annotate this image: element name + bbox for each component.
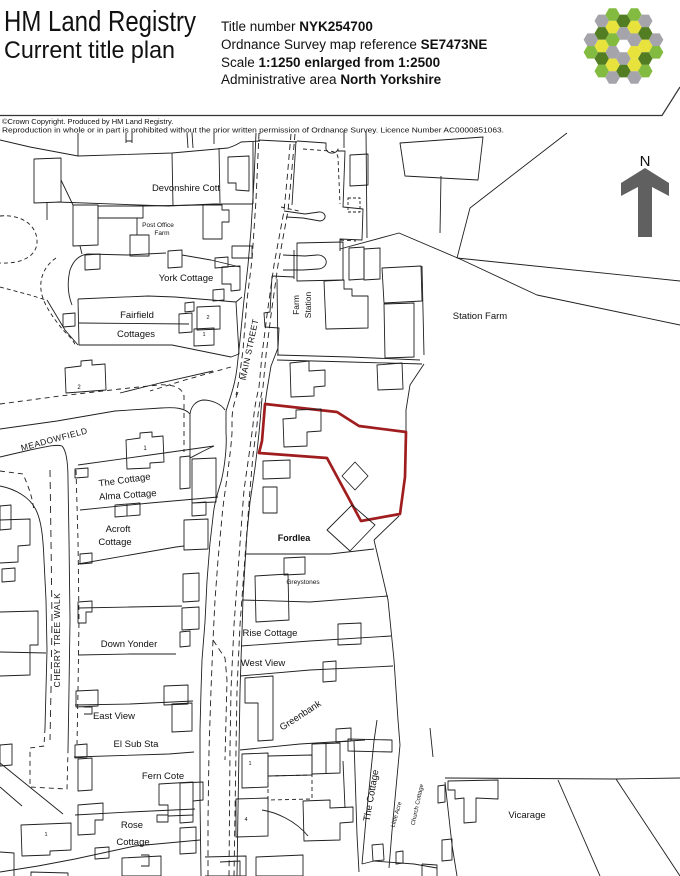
svg-text:York Cottage: York Cottage	[159, 273, 214, 284]
svg-text:Post Office: Post Office	[142, 222, 174, 229]
svg-text:Current title plan: Current title plan	[4, 37, 175, 64]
svg-text:Fordlea: Fordlea	[278, 533, 312, 543]
svg-text:Cottage: Cottage	[98, 537, 131, 548]
svg-text:Cottage: Cottage	[116, 837, 149, 848]
svg-text:1: 1	[202, 332, 205, 338]
svg-text:4: 4	[244, 817, 247, 823]
svg-text:Down Yonder: Down Yonder	[101, 639, 158, 650]
svg-text:Administrative area North York: Administrative area North Yorkshire	[221, 72, 442, 87]
svg-text:1: 1	[44, 832, 47, 838]
svg-text:1: 1	[248, 761, 251, 767]
svg-text:Cottages: Cottages	[117, 329, 155, 340]
svg-text:Fairfield: Fairfield	[120, 310, 154, 321]
svg-text:Fern Cote: Fern Cote	[142, 771, 184, 782]
svg-text:Station Farm: Station Farm	[453, 311, 507, 322]
svg-text:CHERRY TREE WALK: CHERRY TREE WALK	[52, 593, 62, 688]
svg-text:Rise Cottage: Rise Cottage	[243, 628, 298, 639]
svg-text:HM Land Registry: HM Land Registry	[4, 6, 196, 38]
svg-text:Farm: Farm	[291, 295, 301, 315]
svg-text:El Sub Sta: El Sub Sta	[114, 739, 160, 750]
svg-text:Farm: Farm	[154, 230, 169, 237]
svg-text:Station: Station	[303, 291, 313, 318]
svg-text:Rose: Rose	[121, 820, 143, 831]
svg-text:East View: East View	[93, 711, 135, 722]
svg-text:Ordnance Survey map reference: Ordnance Survey map reference SE7473NE	[221, 37, 487, 52]
svg-text:2: 2	[206, 315, 209, 321]
svg-text:N: N	[640, 153, 651, 170]
svg-text:Acroft: Acroft	[106, 524, 131, 535]
svg-text:Reproduction in whole or in pa: Reproduction in whole or in part is proh…	[2, 126, 504, 135]
svg-text:Devonshire Cott: Devonshire Cott	[152, 183, 220, 194]
svg-text:Vicarage: Vicarage	[508, 810, 545, 821]
svg-text:Scale 1:1250 enlarged from 1:2: Scale 1:1250 enlarged from 1:2500	[221, 55, 440, 70]
svg-text:West View: West View	[241, 658, 286, 669]
svg-text:Greystones: Greystones	[286, 579, 320, 586]
svg-text:Title number NYK254700: Title number NYK254700	[221, 19, 373, 34]
